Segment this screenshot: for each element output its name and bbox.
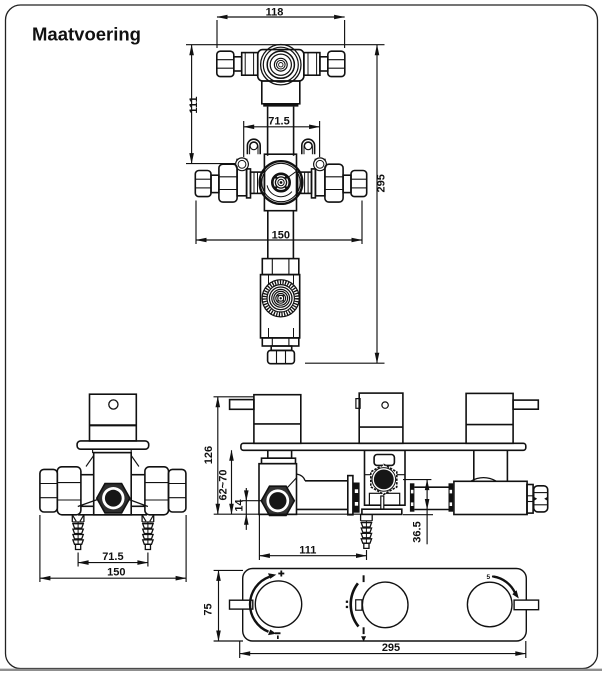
svg-text:62~70: 62~70 [217, 470, 229, 501]
svg-text:71.5: 71.5 [268, 116, 289, 128]
svg-text:118: 118 [266, 7, 284, 19]
svg-text:71.5: 71.5 [102, 551, 123, 563]
svg-text:75: 75 [203, 603, 215, 615]
svg-text:295: 295 [376, 174, 388, 192]
svg-text:36.5: 36.5 [411, 521, 423, 542]
svg-text:14: 14 [233, 499, 245, 512]
svg-text:Maatvoering: Maatvoering [32, 24, 141, 45]
svg-text:5: 5 [487, 574, 491, 581]
svg-text:126: 126 [203, 446, 215, 464]
svg-text:111: 111 [299, 545, 316, 557]
svg-text:150: 150 [272, 230, 290, 242]
svg-text:295: 295 [382, 642, 400, 654]
svg-text:111: 111 [188, 96, 200, 113]
svg-text:150: 150 [107, 567, 125, 579]
